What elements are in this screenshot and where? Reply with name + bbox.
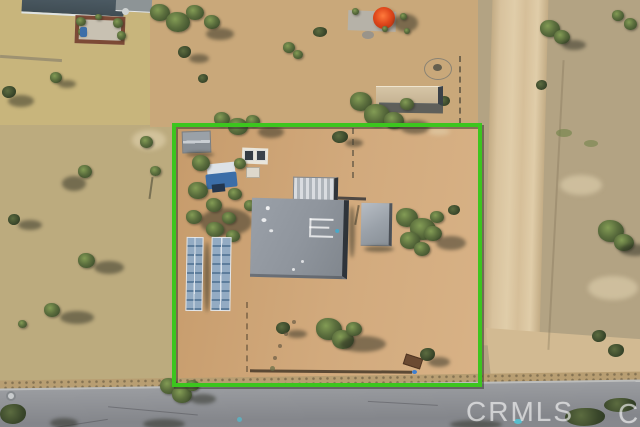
pale-sand-patch — [588, 276, 638, 300]
blue-barrel — [80, 27, 87, 37]
tree — [140, 136, 153, 148]
tree-shadow — [562, 40, 586, 50]
patio-plant — [117, 31, 126, 40]
tree-shadow — [8, 95, 34, 107]
tree-shadow — [189, 54, 209, 63]
fence-line — [459, 56, 461, 124]
aerial-property-photo: CRMLS C — [0, 0, 640, 427]
property-boundary-outline — [172, 123, 482, 387]
tree-shadow — [62, 176, 86, 191]
crmls-watermark: CRMLS — [466, 396, 574, 427]
road-debris — [237, 417, 242, 422]
grass-tuft — [556, 129, 572, 137]
utility-cap — [6, 391, 16, 401]
tree — [204, 15, 220, 29]
tree-shadow — [190, 394, 216, 404]
pale-sand-patch — [560, 175, 602, 195]
shrub-silhouette — [50, 418, 78, 427]
yard-item — [362, 31, 374, 39]
patio-plant — [95, 14, 102, 20]
fire-pit — [433, 64, 442, 71]
tree-shadow — [58, 80, 76, 88]
tree — [186, 5, 204, 20]
potted-plant — [382, 26, 388, 32]
dirt-road — [483, 0, 548, 347]
crmls-watermark-partial: C — [618, 398, 640, 427]
tree — [150, 166, 161, 176]
tree-shadow — [60, 311, 94, 324]
potted-plant — [352, 8, 359, 15]
shrub — [18, 320, 27, 328]
grass-tuft — [584, 140, 598, 147]
tree — [400, 98, 414, 110]
shrub-silhouette — [143, 419, 185, 427]
joshua-tree — [78, 253, 95, 268]
tree-shadow — [94, 261, 124, 274]
joshua-tree — [44, 303, 60, 317]
tree-shadow — [18, 220, 42, 230]
shrub — [612, 10, 624, 21]
shrub — [624, 18, 637, 30]
potted-plant — [404, 28, 410, 34]
potted-plant — [400, 13, 407, 20]
road-crack — [368, 401, 438, 406]
satellite-dish — [122, 8, 129, 15]
patio-plant — [76, 17, 86, 26]
cactus — [293, 50, 303, 59]
patio-plant — [113, 18, 123, 28]
tree-shadow — [206, 28, 234, 40]
road-crack — [108, 406, 198, 415]
